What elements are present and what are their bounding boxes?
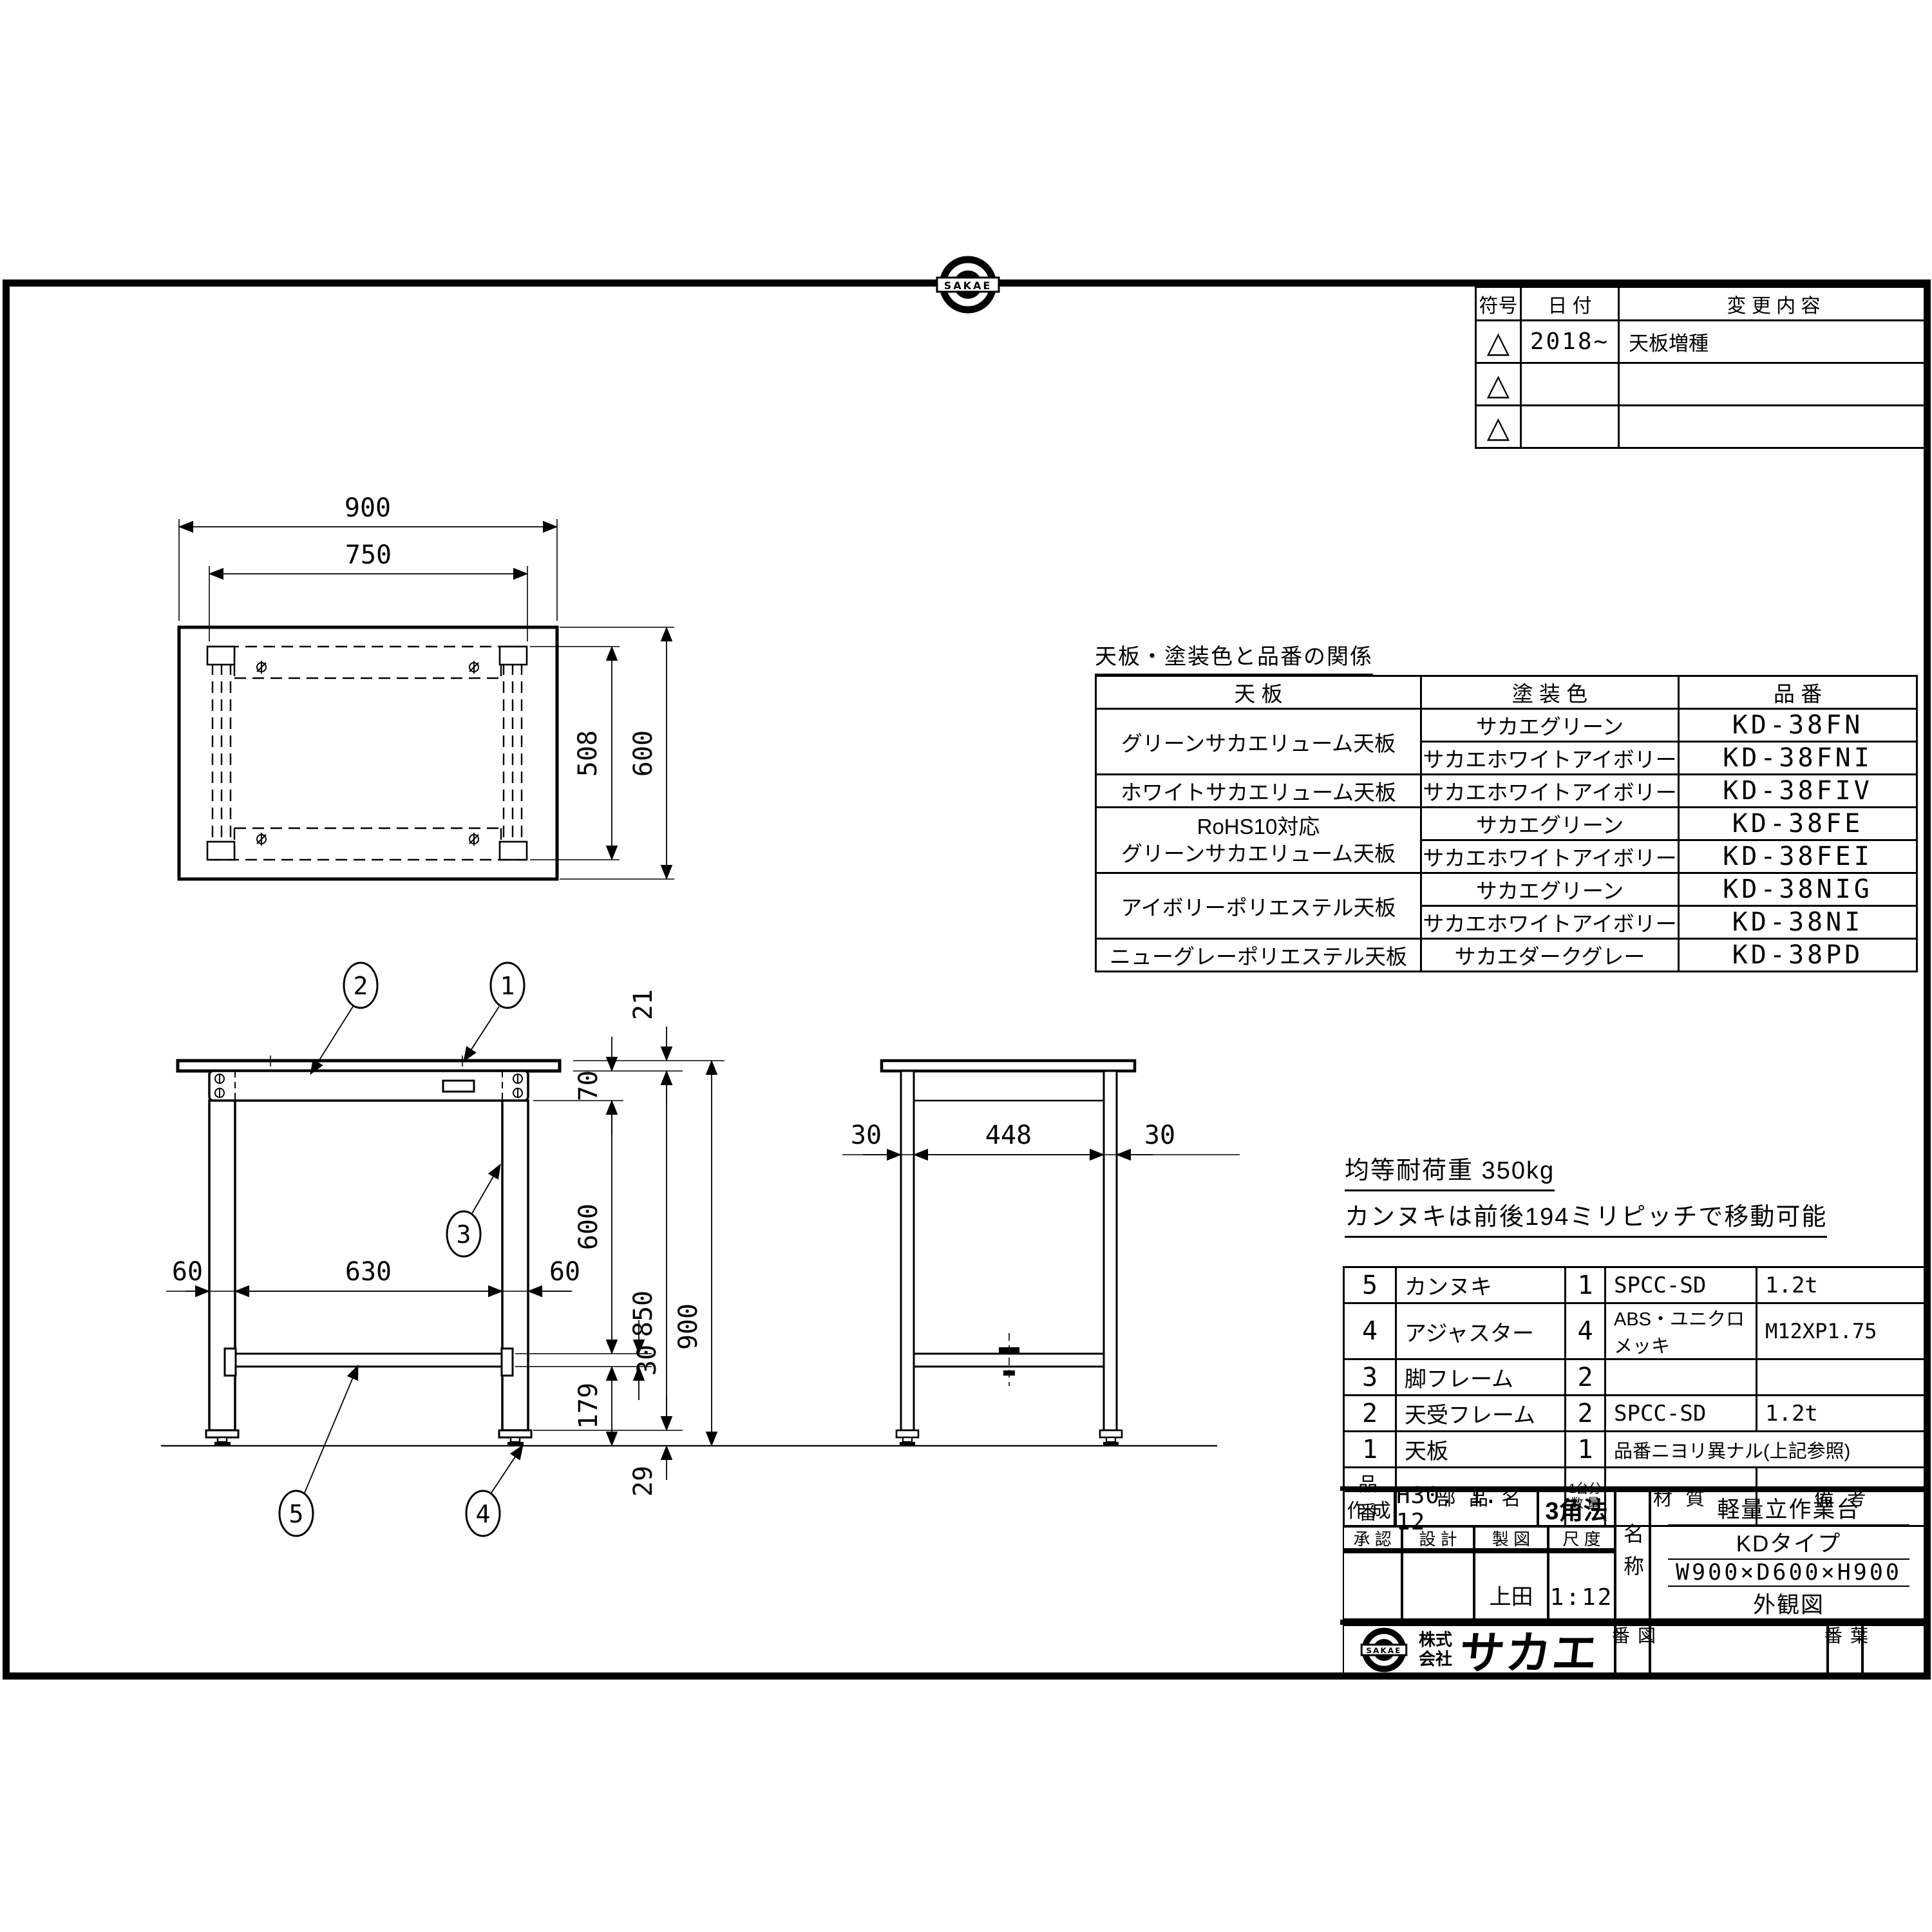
- company-prefix-line2: 会社: [1419, 1650, 1452, 1669]
- side-view: 30 448 30: [842, 1061, 1240, 1446]
- top-view: 900 750 508 600: [179, 493, 674, 879]
- top-board-name: アイボリーポリエステル天板: [1096, 873, 1421, 939]
- revision-row: △ 2018~ 天板増種: [1476, 321, 1929, 363]
- part-remarks: 1.2t: [1757, 1267, 1928, 1303]
- approval-label: 承 認: [1343, 1526, 1402, 1549]
- titleblock-separator: [1340, 1620, 1927, 1625]
- dim-side-30l: 30: [851, 1121, 882, 1150]
- dim-front-850: 850: [629, 1291, 658, 1337]
- part-name: カンヌキ: [1396, 1267, 1566, 1303]
- revision-col-symbol: 符号: [1476, 287, 1521, 321]
- color-row: グリーンサカエリューム天板 サカエグリーン KD-38FN: [1096, 709, 1917, 742]
- crossbar-latch-left: [225, 1349, 236, 1376]
- approval-value: [1343, 1552, 1402, 1620]
- projection-method: 3角法: [1538, 1491, 1615, 1526]
- name-label: 名称: [1615, 1491, 1650, 1620]
- revision-change: [1619, 363, 1929, 406]
- part-qty: 2: [1566, 1359, 1605, 1396]
- dim-top-750: 750: [345, 540, 392, 570]
- balloon-4-number: 4: [476, 1500, 491, 1528]
- company-prefix: 株式 会社: [1419, 1631, 1452, 1669]
- part-remarks: 1.2t: [1757, 1396, 1928, 1432]
- top-board-name: グリーンサカエリューム天板: [1096, 709, 1421, 775]
- revision-symbol-icon: △: [1476, 321, 1521, 363]
- paint-color: サカエホワイトアイボリー: [1421, 775, 1679, 808]
- created-label: 作 成: [1343, 1491, 1395, 1526]
- parts-row: 5 カンヌキ 1 SPCC-SD 1.2t: [1344, 1267, 1928, 1303]
- color-row: RoHS10対応 グリーンサカエリューム天板 サカエグリーン KD-38FE: [1096, 808, 1917, 840]
- sakae-logo-bottom-text: SAKAE: [1366, 1646, 1401, 1655]
- part-no: 4: [1344, 1303, 1396, 1359]
- front-left-leg: [209, 1101, 235, 1430]
- product-code: KD-38FN: [1679, 709, 1917, 742]
- part-name: 脚フレーム: [1396, 1359, 1566, 1396]
- dim-front-900: 900: [674, 1303, 703, 1350]
- part-material: SPCC-SD: [1605, 1267, 1757, 1303]
- paint-color: サカエダークグレー: [1421, 939, 1679, 972]
- balloon-5-number: 5: [289, 1500, 304, 1528]
- parts-row: 3 脚フレーム 2: [1344, 1359, 1928, 1396]
- revision-date: [1521, 406, 1619, 448]
- paint-color: サカエホワイトアイボリー: [1421, 906, 1679, 939]
- dim-top-508: 508: [573, 730, 603, 777]
- color-col-top: 天 板: [1096, 676, 1421, 709]
- company-prefix-line1: 株式: [1419, 1631, 1452, 1650]
- parts-row: 4 アジャスター 4 ABS・ユニクロメッキ M12XP1.75: [1344, 1303, 1928, 1359]
- revision-symbol-icon: △: [1476, 406, 1521, 448]
- dim-top-900: 900: [345, 493, 391, 523]
- paint-color: サカエグリーン: [1421, 808, 1679, 840]
- design-label: 設 計: [1402, 1526, 1474, 1549]
- front-view: 60 630 60 21 70 600 850 900 30 179 29: [166, 963, 724, 1536]
- note-crossbar-pitch: カンヌキは前後194ミリピッチで移動可能: [1345, 1197, 1827, 1238]
- part-remarks: [1757, 1359, 1928, 1396]
- drawing-kind: 外観図: [1668, 1587, 1909, 1620]
- part-no: 2: [1344, 1396, 1396, 1432]
- color-row: ホワイトサカエリューム天板 サカエホワイトアイボリー KD-38FIV: [1096, 775, 1917, 808]
- front-adjusters: [206, 1430, 531, 1446]
- parts-row: 2 天受フレーム 2 SPCC-SD 1.2t: [1344, 1396, 1928, 1432]
- balloon-2-number: 2: [354, 972, 368, 1000]
- product-size: W900×D600×H900: [1668, 1560, 1909, 1587]
- color-product-table: 天 板 塗 装 色 品 番 グリーンサカエリューム天板 サカエグリーン KD-3…: [1095, 675, 1918, 972]
- part-material: 品番ニヨリ異ナル(上記参照): [1605, 1432, 1928, 1468]
- part-name: 天板: [1396, 1432, 1566, 1468]
- part-qty: 4: [1566, 1303, 1605, 1359]
- front-height-dims: [515, 1027, 724, 1480]
- top-board-name: ホワイトサカエリューム天板: [1096, 775, 1421, 808]
- side-left-leg: [901, 1071, 914, 1430]
- front-right-leg: [502, 1101, 528, 1430]
- sakae-logo-top-icon: SAKAE: [937, 260, 999, 310]
- side-adjusters: [896, 1430, 1122, 1446]
- revision-table: 符号 日 付 変 更 内 容 △ 2018~ 天板増種 △ △: [1475, 286, 1929, 449]
- color-row: ニューグレーポリエステル天板 サカエダークグレー KD-38PD: [1096, 939, 1917, 972]
- scale-value: 1:12: [1548, 1552, 1615, 1620]
- top-view-dimensions: [179, 519, 674, 879]
- product-code: KD-38FIV: [1679, 775, 1917, 808]
- parts-row: 1 天板 1 品番ニヨリ異ナル(上記参照): [1344, 1432, 1928, 1468]
- product-code: KD-38PD: [1679, 939, 1917, 972]
- dim-front-60l: 60: [172, 1257, 203, 1287]
- dim-side-30r: 30: [1144, 1121, 1175, 1150]
- name-values: 軽量立作業台 KDタイプ W900×D600×H900 外観図: [1650, 1491, 1927, 1620]
- revision-col-change: 変 更 内 容: [1619, 287, 1929, 321]
- dim-front-30: 30: [632, 1345, 662, 1376]
- revision-row: △: [1476, 406, 1929, 448]
- dim-top-600: 600: [629, 730, 658, 777]
- part-material: [1605, 1359, 1757, 1396]
- front-latch-slot: [443, 1081, 474, 1092]
- revision-change: 天板増種: [1619, 321, 1929, 363]
- dim-side-448: 448: [985, 1121, 1032, 1150]
- paint-color: サカエグリーン: [1421, 709, 1679, 742]
- side-right-leg: [1104, 1071, 1117, 1430]
- front-apron-frame: [209, 1071, 528, 1101]
- balloon-3-number: 3: [457, 1220, 471, 1249]
- part-qty: 1: [1566, 1432, 1605, 1468]
- part-name: アジャスター: [1396, 1303, 1566, 1359]
- company-logo-cell: SAKAE 株式 会社 サカエ: [1343, 1625, 1615, 1674]
- drawing-no-label: 図番: [1615, 1625, 1650, 1674]
- product-code: KD-38FNI: [1679, 742, 1917, 775]
- top-view-hidden-frame: [209, 647, 527, 860]
- product-type: KDタイプ: [1668, 1526, 1909, 1560]
- paint-color: サカエホワイトアイボリー: [1421, 742, 1679, 775]
- revision-date: 2018~: [1521, 321, 1619, 363]
- part-material: SPCC-SD: [1605, 1396, 1757, 1432]
- name-label-text: 名称: [1618, 1523, 1647, 1587]
- top-board-name: ニューグレーポリエステル天板: [1096, 939, 1421, 972]
- dim-front-21: 21: [629, 989, 658, 1020]
- color-col-code: 品 番: [1679, 676, 1917, 709]
- paint-color: サカエグリーン: [1421, 873, 1679, 906]
- crossbar-latch-right: [502, 1349, 513, 1376]
- front-tabletop: [178, 1061, 560, 1071]
- sheet-no-value: [1862, 1625, 1927, 1674]
- product-code: KD-38NIG: [1679, 873, 1917, 906]
- sakae-logo-bottom-icon: SAKAE: [1358, 1626, 1410, 1674]
- product-code: KD-38FEI: [1679, 840, 1917, 873]
- part-no: 3: [1344, 1359, 1396, 1396]
- part-qty: 1: [1566, 1267, 1605, 1303]
- product-code: KD-38FE: [1679, 808, 1917, 840]
- dim-front-630: 630: [345, 1257, 392, 1287]
- revision-change: [1619, 406, 1929, 448]
- color-table-title: 天板・塗装色と品番の関係: [1095, 639, 1373, 676]
- part-balloons: [279, 963, 524, 1536]
- revision-symbol-icon: △: [1476, 363, 1521, 406]
- product-name: 軽量立作業台: [1668, 1492, 1909, 1526]
- revision-col-date: 日 付: [1521, 287, 1619, 321]
- top-board-name: RoHS10対応 グリーンサカエリューム天板: [1096, 808, 1421, 873]
- drawing-no-value: [1650, 1625, 1828, 1674]
- dim-front-60r: 60: [549, 1257, 580, 1287]
- front-crossbar: [235, 1354, 502, 1367]
- dim-front-600: 600: [574, 1204, 603, 1250]
- paint-color: サカエホワイトアイボリー: [1421, 840, 1679, 873]
- drawing-sheet: 900 750 508 600: [0, 0, 1932, 1932]
- revision-row: △: [1476, 363, 1929, 406]
- sakae-logo-top-text: SAKAE: [944, 279, 992, 292]
- design-value: [1402, 1552, 1474, 1620]
- part-no: 5: [1344, 1267, 1396, 1303]
- dim-front-29: 29: [629, 1466, 658, 1497]
- revision-date: [1521, 363, 1619, 406]
- part-qty: 2: [1566, 1396, 1605, 1432]
- part-no: 1: [1344, 1432, 1396, 1468]
- part-name: 天受フレーム: [1396, 1396, 1566, 1432]
- sheet-no-label: 葉番: [1828, 1625, 1862, 1674]
- dim-front-70: 70: [574, 1070, 603, 1101]
- drafting-label: 製 図: [1474, 1526, 1548, 1549]
- part-material: ABS・ユニクロメッキ: [1605, 1303, 1757, 1359]
- part-remarks: M12XP1.75: [1757, 1303, 1928, 1359]
- screw-icon: [257, 661, 478, 846]
- color-row: アイボリーポリエステル天板 サカエグリーン KD-38NIG: [1096, 873, 1917, 906]
- note-load-capacity: 均等耐荷重 350kg: [1345, 1150, 1555, 1191]
- dim-front-179: 179: [574, 1383, 603, 1429]
- scale-label: 尺 度: [1548, 1526, 1615, 1549]
- balloon-1-number: 1: [500, 972, 515, 1000]
- product-code: KD-38NI: [1679, 906, 1917, 939]
- created-date: H30. 1. 12: [1395, 1491, 1538, 1526]
- company-name: サカエ: [1457, 1617, 1603, 1682]
- drafter-name: 上田: [1474, 1552, 1548, 1620]
- side-tabletop: [882, 1061, 1135, 1071]
- color-col-color: 塗 装 色: [1421, 676, 1679, 709]
